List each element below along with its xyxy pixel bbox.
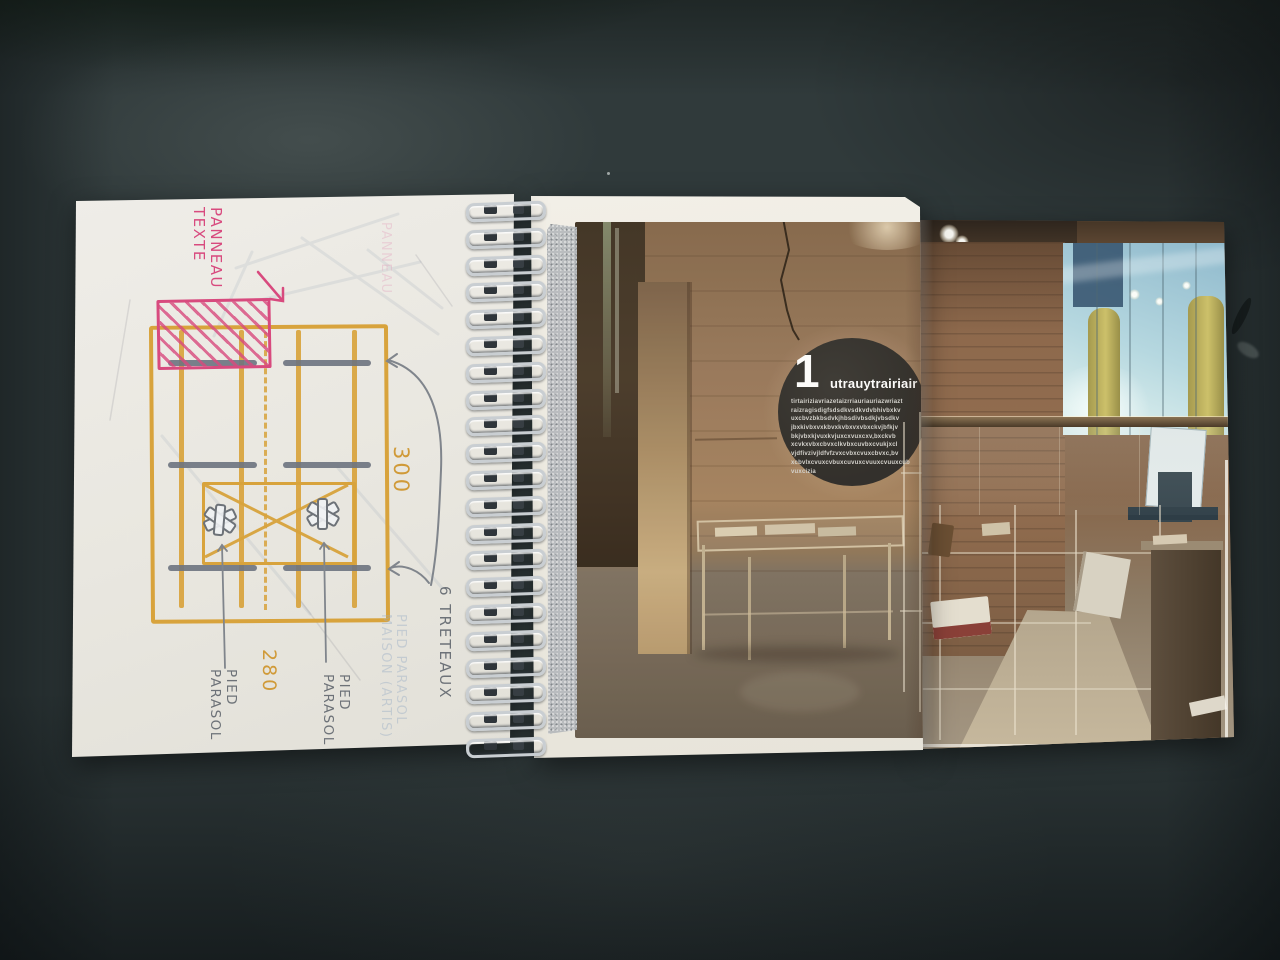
foot-label-right: PIED PARASOL	[320, 674, 351, 746]
arrow-icon	[258, 272, 283, 301]
wire-loop	[466, 442, 547, 464]
ghost-text-parasol: PIED PARASOL MAISON (ARTIS)	[377, 614, 407, 738]
wire-loop	[466, 710, 547, 732]
foot-label-left: PIED PARASOL	[207, 669, 238, 741]
trestles-label: 6 TRETEAUX	[436, 586, 453, 700]
wire-loop	[466, 254, 547, 276]
spiral-binding	[466, 202, 544, 754]
wire-loop	[466, 415, 547, 437]
wire-loop	[466, 629, 547, 651]
wire-loop	[466, 361, 547, 383]
dim-300-label: 300	[389, 446, 413, 495]
wire-loop	[466, 495, 547, 517]
desk-surface: 1 utrauytrairiair tirtairiziavriazetaizr…	[0, 0, 1280, 960]
text-panel-hatched	[156, 298, 271, 370]
wire-loop	[466, 603, 547, 625]
wire-loop	[466, 308, 547, 330]
wire-loop	[466, 227, 547, 249]
wire-loop	[466, 576, 547, 598]
dim-280-label: 280	[257, 649, 279, 694]
wire-loop	[466, 737, 547, 759]
wire-loop	[466, 201, 547, 223]
wire-loop	[466, 522, 547, 544]
wire-loop	[466, 281, 547, 303]
wire-loop	[466, 683, 547, 705]
panel-label: PANNEAU TEXTE	[190, 207, 225, 289]
sketch-layer: PANNEAU TEXTE 300 280 6 TRETEAUX PIED PA…	[0, 0, 1280, 960]
ghost-text-panneau: PANNEAU	[377, 222, 392, 294]
wire-loop	[466, 388, 547, 410]
wire-loop	[466, 656, 547, 678]
wire-loop	[466, 335, 547, 357]
wire-loop	[466, 549, 547, 571]
wire-loop	[466, 469, 547, 491]
